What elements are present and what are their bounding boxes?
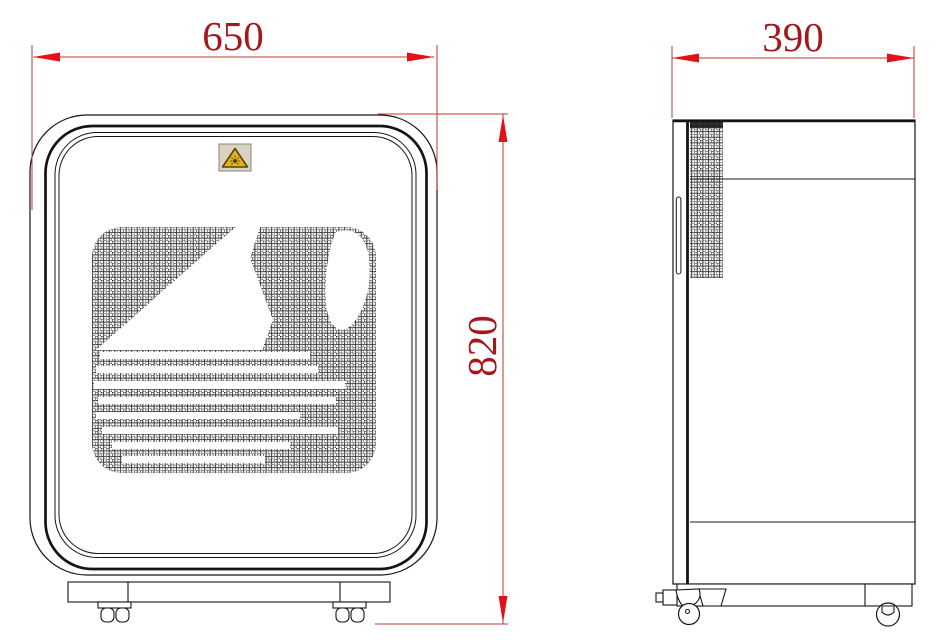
- logo-stripe: [96, 412, 300, 419]
- logo-stripe: [122, 456, 265, 463]
- caster-plate: [98, 602, 131, 608]
- front-plinth-band: [68, 582, 390, 602]
- caster-hub: [686, 610, 690, 614]
- arrowhead-top: [499, 115, 508, 142]
- logo-stripe: [94, 381, 345, 389]
- front-view: [30, 115, 437, 622]
- side-vent-dot-band: [690, 122, 723, 278]
- side-vent-dense-top: [690, 122, 723, 128]
- dimension-front-width-label: 650: [202, 13, 264, 59]
- logo-stripe: [100, 352, 310, 359]
- side-view: [656, 120, 915, 626]
- dimension-front-height-label: 820: [459, 315, 505, 377]
- caster-wheel: [679, 604, 700, 625]
- warning-label: [219, 144, 251, 171]
- caster-wheel: [336, 608, 349, 622]
- side-caster-rear: [877, 603, 900, 626]
- caster-brake-tab: [663, 590, 677, 605]
- dimension-side-depth-label: 390: [762, 14, 824, 60]
- front-grille: [92, 227, 376, 473]
- logo-stripe: [96, 366, 318, 373]
- caster-mount-block: [698, 589, 726, 606]
- drawing-canvas: 650 820 390: [0, 0, 948, 643]
- dimension-side-depth: 390: [672, 14, 914, 118]
- arrowhead-left: [33, 53, 60, 62]
- side-handle-slot: [676, 197, 681, 274]
- side-caster-front: [656, 589, 700, 625]
- caster-brake-tab-small: [656, 593, 663, 602]
- arrowhead-left: [672, 54, 699, 63]
- logo-stripe: [112, 442, 290, 449]
- caster-wheel: [116, 608, 129, 622]
- arrowhead-right: [407, 53, 434, 62]
- front-caster-right: [333, 602, 366, 622]
- arrowhead-right: [887, 54, 914, 63]
- logo-stripe: [102, 427, 338, 434]
- front-caster-left: [98, 602, 131, 622]
- caster-fork: [882, 606, 894, 615]
- caster-wheel: [101, 608, 114, 622]
- logo-stripe: [98, 397, 336, 404]
- caster-plate: [333, 602, 366, 608]
- arrowhead-bottom: [499, 596, 508, 623]
- caster-wheel: [351, 608, 364, 622]
- front-plinth: [68, 582, 390, 602]
- side-plinth: [677, 584, 912, 606]
- technical-drawing: 650 820 390: [0, 0, 948, 643]
